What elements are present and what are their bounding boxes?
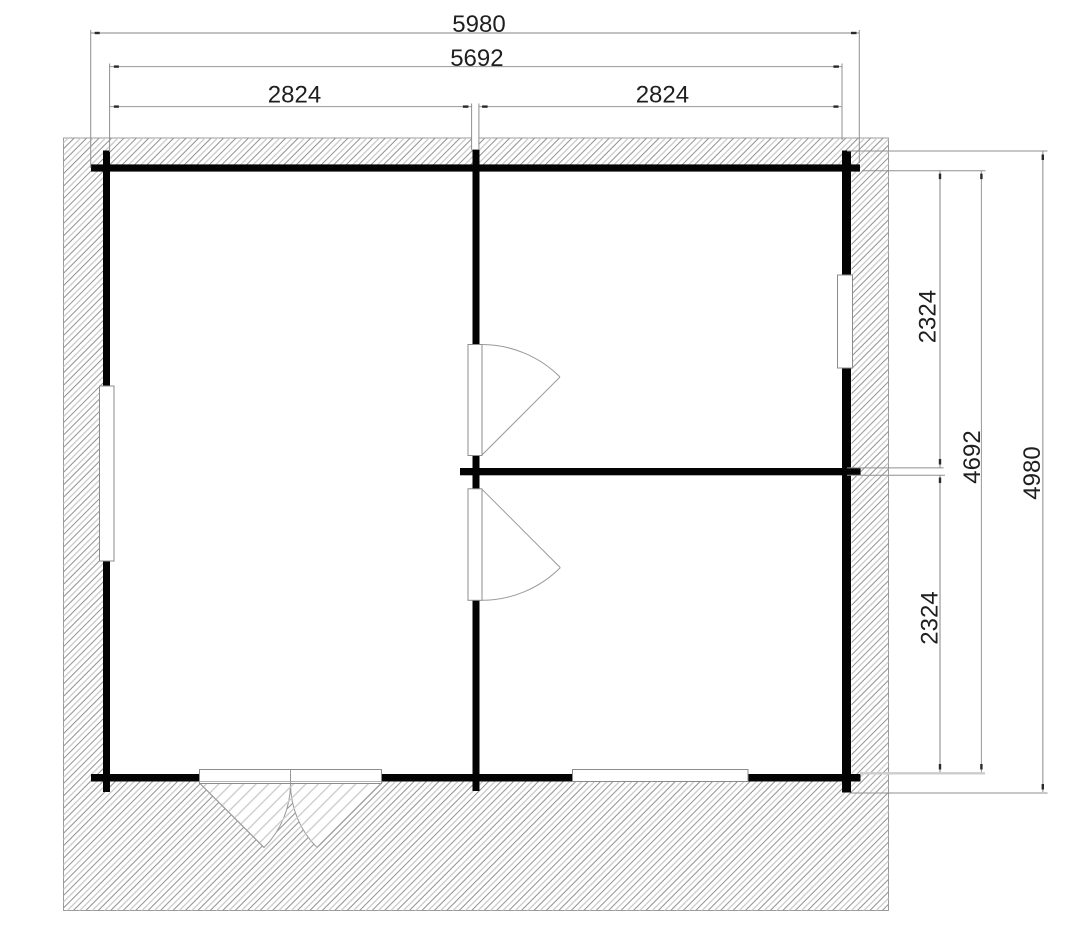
svg-text:5692: 5692 [450,45,503,72]
svg-text:5980: 5980 [452,11,505,38]
svg-text:4692: 4692 [959,430,986,483]
svg-text:2824: 2824 [268,81,321,108]
svg-text:2324: 2324 [914,290,941,343]
svg-text:2324: 2324 [916,591,943,644]
svg-text:4980: 4980 [1019,446,1046,499]
svg-text:2824: 2824 [636,81,689,108]
